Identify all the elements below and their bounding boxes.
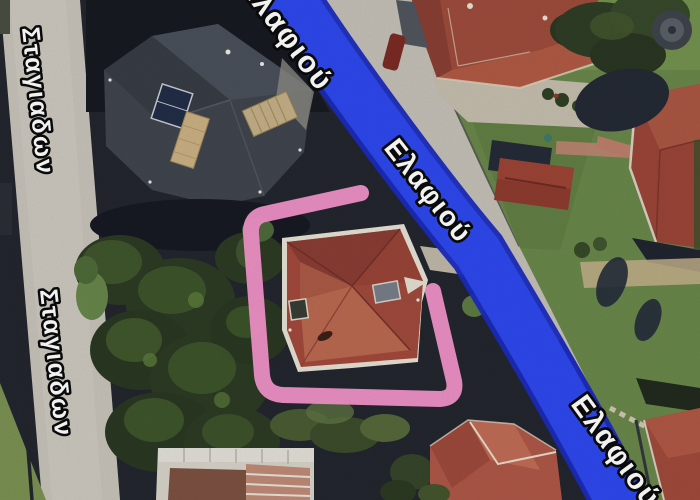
- noise-overlay: [0, 0, 700, 500]
- satellite-imagery: Σταγιαδων Σταγιαδων Ελαφιού Ελαφιού Ελαφ…: [0, 0, 700, 500]
- satellite-map-view[interactable]: Σταγιαδων Σταγιαδων Ελαφιού Ελαφιού Ελαφ…: [0, 0, 700, 500]
